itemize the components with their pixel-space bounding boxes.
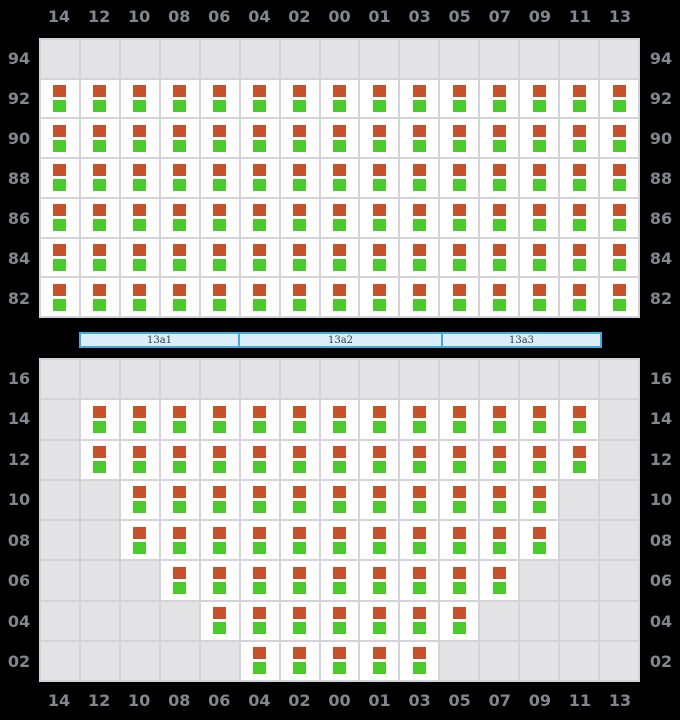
container-marker-top: [493, 125, 506, 137]
container-marker-top: [413, 486, 426, 498]
container-marker-bottom: [493, 299, 506, 311]
row-label-86: 86: [642, 198, 680, 238]
slot-92-03[interactable]: [400, 80, 438, 118]
slot-84-09[interactable]: [520, 239, 558, 277]
container-marker-top: [293, 446, 306, 458]
slot-86-05[interactable]: [440, 199, 478, 237]
slot-14-03[interactable]: [400, 400, 438, 438]
container-marker-top: [173, 446, 186, 458]
slot-82-07[interactable]: [480, 278, 518, 316]
container-marker-top: [173, 204, 186, 216]
container-marker-top: [413, 85, 426, 97]
slot-02-03[interactable]: [400, 642, 438, 680]
slot-92-04[interactable]: [241, 80, 279, 118]
slot-82-09[interactable]: [520, 278, 558, 316]
slot-86-03[interactable]: [400, 199, 438, 237]
slot-82-00[interactable]: [321, 278, 359, 316]
slot-82-06[interactable]: [201, 278, 239, 316]
slot-12-05[interactable]: [440, 441, 478, 479]
slot-94-10: [121, 40, 159, 78]
slot-86-01[interactable]: [360, 199, 398, 237]
slot-16-01: [360, 360, 398, 398]
slot-84-02[interactable]: [281, 239, 319, 277]
slot-88-09[interactable]: [520, 159, 558, 197]
slot-06-05[interactable]: [440, 561, 478, 599]
slot-04-06[interactable]: [201, 602, 239, 640]
container-marker-bottom: [253, 259, 266, 271]
slot-82-05[interactable]: [440, 278, 478, 316]
container-marker-bottom: [133, 542, 146, 554]
slot-88-12[interactable]: [81, 159, 119, 197]
slot-90-10[interactable]: [121, 119, 159, 157]
container-marker-top: [253, 567, 266, 579]
slot-92-00[interactable]: [321, 80, 359, 118]
column-label-11: 11: [560, 7, 600, 26]
row-label-12: 12: [0, 439, 38, 480]
slot-84-01[interactable]: [360, 239, 398, 277]
slot-90-04[interactable]: [241, 119, 279, 157]
slot-92-07[interactable]: [480, 80, 518, 118]
slot-12-09[interactable]: [520, 441, 558, 479]
slot-88-08[interactable]: [161, 159, 199, 197]
column-label-14: 14: [39, 7, 79, 26]
container-marker-bottom: [613, 140, 626, 152]
slot-14-11[interactable]: [560, 400, 598, 438]
slot-04-04[interactable]: [241, 602, 279, 640]
slot-88-11[interactable]: [560, 159, 598, 197]
container-marker-top: [373, 607, 386, 619]
slot-84-06[interactable]: [201, 239, 239, 277]
slot-90-14[interactable]: [41, 119, 79, 157]
slot-86-10[interactable]: [121, 199, 159, 237]
slot-84-14[interactable]: [41, 239, 79, 277]
slot-86-02[interactable]: [281, 199, 319, 237]
slot-84-12[interactable]: [81, 239, 119, 277]
container-marker-bottom: [573, 219, 586, 231]
container-marker-bottom: [613, 219, 626, 231]
slot-82-03[interactable]: [400, 278, 438, 316]
container-marker-top: [253, 527, 266, 539]
container-marker-bottom: [373, 179, 386, 191]
slot-92-02[interactable]: [281, 80, 319, 118]
slot-10-00[interactable]: [321, 481, 359, 519]
slot-84-08[interactable]: [161, 239, 199, 277]
slot-92-11[interactable]: [560, 80, 598, 118]
slot-86-09[interactable]: [520, 199, 558, 237]
hatch-cover-13a3[interactable]: 13a3: [441, 334, 600, 346]
slot-16-14: [41, 360, 79, 398]
slot-82-13[interactable]: [600, 278, 638, 316]
container-marker-top: [133, 446, 146, 458]
slot-94-04: [241, 40, 279, 78]
slot-14-07[interactable]: [480, 400, 518, 438]
slot-82-12[interactable]: [81, 278, 119, 316]
container-marker-top: [333, 406, 346, 418]
slot-08-10[interactable]: [121, 521, 159, 559]
slot-86-14[interactable]: [41, 199, 79, 237]
slot-02-00[interactable]: [321, 642, 359, 680]
row-label-14: 14: [642, 399, 680, 440]
container-marker-top: [573, 125, 586, 137]
container-marker-top: [413, 567, 426, 579]
row-label-94: 94: [0, 38, 38, 78]
slot-08-05[interactable]: [440, 521, 478, 559]
container-marker-top: [613, 204, 626, 216]
slot-08-02[interactable]: [281, 521, 319, 559]
slot-12-06[interactable]: [201, 441, 239, 479]
container-marker-top: [413, 125, 426, 137]
slot-16-05: [440, 360, 478, 398]
slot-06-02[interactable]: [281, 561, 319, 599]
slot-90-02[interactable]: [281, 119, 319, 157]
container-marker-bottom: [253, 582, 266, 594]
slot-06-06[interactable]: [201, 561, 239, 599]
slot-88-05[interactable]: [440, 159, 478, 197]
hold-bay-grid: [39, 358, 640, 682]
slot-10-07[interactable]: [480, 481, 518, 519]
container-marker-bottom: [453, 140, 466, 152]
slot-12-00[interactable]: [321, 441, 359, 479]
container-marker-top: [133, 125, 146, 137]
slot-90-03[interactable]: [400, 119, 438, 157]
slot-10-02[interactable]: [281, 481, 319, 519]
slot-86-13[interactable]: [600, 199, 638, 237]
container-marker-bottom: [573, 299, 586, 311]
container-marker-top: [213, 204, 226, 216]
container-marker-top: [573, 446, 586, 458]
slot-02-01[interactable]: [360, 642, 398, 680]
slot-04-03[interactable]: [400, 602, 438, 640]
slot-90-00[interactable]: [321, 119, 359, 157]
slot-90-12[interactable]: [81, 119, 119, 157]
container-marker-top: [173, 164, 186, 176]
column-label-05: 05: [440, 691, 480, 710]
slot-10-09[interactable]: [520, 481, 558, 519]
slot-82-11[interactable]: [560, 278, 598, 316]
slot-88-07[interactable]: [480, 159, 518, 197]
slot-04-11: [560, 602, 598, 640]
slot-94-00: [321, 40, 359, 78]
column-label-04: 04: [239, 691, 279, 710]
container-marker-top: [293, 204, 306, 216]
slot-10-05[interactable]: [440, 481, 478, 519]
slot-04-08: [161, 602, 199, 640]
slot-92-01[interactable]: [360, 80, 398, 118]
container-marker-top: [453, 85, 466, 97]
slot-06-09: [520, 561, 558, 599]
hold-row-labels-right: 1614121008060402: [642, 358, 680, 682]
slot-10-03[interactable]: [400, 481, 438, 519]
slot-88-04[interactable]: [241, 159, 279, 197]
slot-16-10: [121, 360, 159, 398]
slot-08-03[interactable]: [400, 521, 438, 559]
container-marker-top: [453, 527, 466, 539]
slot-14-08[interactable]: [161, 400, 199, 438]
slot-92-13[interactable]: [600, 80, 638, 118]
slot-88-13[interactable]: [600, 159, 638, 197]
slot-82-01[interactable]: [360, 278, 398, 316]
container-marker-top: [493, 527, 506, 539]
container-marker-top: [493, 406, 506, 418]
slot-86-11[interactable]: [560, 199, 598, 237]
slot-08-09[interactable]: [520, 521, 558, 559]
container-marker-bottom: [53, 299, 66, 311]
slot-92-10[interactable]: [121, 80, 159, 118]
slot-90-13[interactable]: [600, 119, 638, 157]
slot-06-00[interactable]: [321, 561, 359, 599]
slot-92-06[interactable]: [201, 80, 239, 118]
slot-06-08[interactable]: [161, 561, 199, 599]
hatch-cover-13a1[interactable]: 13a1: [81, 334, 238, 346]
container-marker-top: [453, 567, 466, 579]
container-marker-bottom: [133, 501, 146, 513]
container-marker-bottom: [253, 100, 266, 112]
container-marker-bottom: [293, 622, 306, 634]
slot-16-09: [520, 360, 558, 398]
container-marker-bottom: [373, 259, 386, 271]
slot-86-06[interactable]: [201, 199, 239, 237]
slot-06-03[interactable]: [400, 561, 438, 599]
container-marker-bottom: [613, 259, 626, 271]
container-marker-top: [293, 607, 306, 619]
container-marker-bottom: [133, 140, 146, 152]
slot-08-04[interactable]: [241, 521, 279, 559]
container-marker-top: [533, 85, 546, 97]
slot-06-04[interactable]: [241, 561, 279, 599]
container-marker-bottom: [493, 140, 506, 152]
container-marker-top: [453, 244, 466, 256]
slot-04-05[interactable]: [440, 602, 478, 640]
slot-84-05[interactable]: [440, 239, 478, 277]
container-marker-top: [53, 164, 66, 176]
container-marker-top: [333, 284, 346, 296]
slot-10-10[interactable]: [121, 481, 159, 519]
container-marker-top: [213, 567, 226, 579]
slot-06-07[interactable]: [480, 561, 518, 599]
slot-12-11[interactable]: [560, 441, 598, 479]
slot-12-03[interactable]: [400, 441, 438, 479]
container-marker-bottom: [213, 140, 226, 152]
slot-16-12: [81, 360, 119, 398]
slot-08-08[interactable]: [161, 521, 199, 559]
slot-10-11: [560, 481, 598, 519]
slot-90-11[interactable]: [560, 119, 598, 157]
container-marker-bottom: [573, 259, 586, 271]
slot-14-10[interactable]: [121, 400, 159, 438]
slot-14-01[interactable]: [360, 400, 398, 438]
container-marker-bottom: [293, 662, 306, 674]
container-marker-bottom: [493, 259, 506, 271]
slot-84-11[interactable]: [560, 239, 598, 277]
container-marker-bottom: [333, 100, 346, 112]
slot-86-07[interactable]: [480, 199, 518, 237]
slot-90-01[interactable]: [360, 119, 398, 157]
slot-92-08[interactable]: [161, 80, 199, 118]
slot-10-08[interactable]: [161, 481, 199, 519]
row-label-94: 94: [642, 38, 680, 78]
container-marker-top: [413, 204, 426, 216]
container-marker-top: [493, 486, 506, 498]
slot-88-06[interactable]: [201, 159, 239, 197]
container-marker-top: [373, 164, 386, 176]
slot-06-01[interactable]: [360, 561, 398, 599]
slot-90-07[interactable]: [480, 119, 518, 157]
container-marker-bottom: [53, 219, 66, 231]
slot-12-01[interactable]: [360, 441, 398, 479]
container-marker-top: [293, 85, 306, 97]
slot-02-13: [600, 642, 638, 680]
slot-08-07[interactable]: [480, 521, 518, 559]
slot-94-12: [81, 40, 119, 78]
slot-88-00[interactable]: [321, 159, 359, 197]
container-marker-top: [613, 284, 626, 296]
slot-84-10[interactable]: [121, 239, 159, 277]
slot-02-02[interactable]: [281, 642, 319, 680]
container-marker-bottom: [293, 259, 306, 271]
slot-04-00[interactable]: [321, 602, 359, 640]
slot-12-07[interactable]: [480, 441, 518, 479]
slot-08-00[interactable]: [321, 521, 359, 559]
container-marker-top: [213, 446, 226, 458]
slot-82-02[interactable]: [281, 278, 319, 316]
container-marker-bottom: [613, 179, 626, 191]
container-marker-top: [133, 406, 146, 418]
container-marker-bottom: [173, 501, 186, 513]
column-label-08: 08: [159, 691, 199, 710]
container-marker-bottom: [333, 259, 346, 271]
container-marker-bottom: [293, 179, 306, 191]
slot-90-05[interactable]: [440, 119, 478, 157]
container-marker-top: [133, 85, 146, 97]
slot-10-04[interactable]: [241, 481, 279, 519]
slot-84-04[interactable]: [241, 239, 279, 277]
hatch-cover-13a2[interactable]: 13a2: [238, 334, 441, 346]
slot-14-00[interactable]: [321, 400, 359, 438]
container-marker-bottom: [293, 461, 306, 473]
slot-14-06[interactable]: [201, 400, 239, 438]
slot-04-01[interactable]: [360, 602, 398, 640]
container-marker-bottom: [213, 542, 226, 554]
slot-88-10[interactable]: [121, 159, 159, 197]
slot-14-12[interactable]: [81, 400, 119, 438]
column-label-01: 01: [360, 691, 400, 710]
column-label-13: 13: [600, 691, 640, 710]
slot-86-12[interactable]: [81, 199, 119, 237]
slot-10-01[interactable]: [360, 481, 398, 519]
slot-86-04[interactable]: [241, 199, 279, 237]
slot-90-06[interactable]: [201, 119, 239, 157]
container-marker-bottom: [373, 461, 386, 473]
slot-08-01[interactable]: [360, 521, 398, 559]
slot-02-12: [81, 642, 119, 680]
slot-92-12[interactable]: [81, 80, 119, 118]
slot-12-12[interactable]: [81, 441, 119, 479]
slot-14-04[interactable]: [241, 400, 279, 438]
container-marker-top: [373, 125, 386, 137]
container-marker-bottom: [173, 582, 186, 594]
container-marker-bottom: [533, 542, 546, 554]
slot-92-09[interactable]: [520, 80, 558, 118]
slot-12-13: [600, 441, 638, 479]
slot-02-04[interactable]: [241, 642, 279, 680]
container-marker-bottom: [253, 219, 266, 231]
slot-92-14[interactable]: [41, 80, 79, 118]
slot-90-08[interactable]: [161, 119, 199, 157]
slot-12-08[interactable]: [161, 441, 199, 479]
slot-90-09[interactable]: [520, 119, 558, 157]
container-marker-top: [453, 204, 466, 216]
container-marker-top: [413, 607, 426, 619]
slot-88-03[interactable]: [400, 159, 438, 197]
slot-16-04: [241, 360, 279, 398]
slot-88-02[interactable]: [281, 159, 319, 197]
slot-04-02[interactable]: [281, 602, 319, 640]
slot-14-05[interactable]: [440, 400, 478, 438]
container-marker-bottom: [173, 421, 186, 433]
slot-86-00[interactable]: [321, 199, 359, 237]
slot-86-08[interactable]: [161, 199, 199, 237]
container-marker-bottom: [93, 421, 106, 433]
slot-82-10[interactable]: [121, 278, 159, 316]
slot-16-06: [201, 360, 239, 398]
container-marker-top: [253, 607, 266, 619]
slot-84-03[interactable]: [400, 239, 438, 277]
container-marker-bottom: [173, 100, 186, 112]
container-marker-bottom: [413, 622, 426, 634]
container-marker-bottom: [453, 219, 466, 231]
slot-94-02: [281, 40, 319, 78]
slot-84-13[interactable]: [600, 239, 638, 277]
slot-14-09[interactable]: [520, 400, 558, 438]
container-marker-bottom: [613, 299, 626, 311]
slot-84-07[interactable]: [480, 239, 518, 277]
container-marker-top: [213, 527, 226, 539]
slot-08-14: [41, 521, 79, 559]
container-marker-bottom: [573, 140, 586, 152]
slot-94-11: [560, 40, 598, 78]
slot-10-06[interactable]: [201, 481, 239, 519]
slot-08-06[interactable]: [201, 521, 239, 559]
container-marker-bottom: [133, 299, 146, 311]
row-label-92: 92: [0, 78, 38, 118]
container-marker-top: [533, 527, 546, 539]
slot-12-02[interactable]: [281, 441, 319, 479]
slot-02-08: [161, 642, 199, 680]
container-marker-bottom: [453, 299, 466, 311]
slot-82-04[interactable]: [241, 278, 279, 316]
slot-82-08[interactable]: [161, 278, 199, 316]
container-marker-bottom: [53, 100, 66, 112]
container-marker-bottom: [533, 179, 546, 191]
container-marker-bottom: [333, 501, 346, 513]
container-marker-top: [93, 164, 106, 176]
slot-82-14[interactable]: [41, 278, 79, 316]
container-marker-top: [413, 164, 426, 176]
slot-88-14[interactable]: [41, 159, 79, 197]
slot-14-02[interactable]: [281, 400, 319, 438]
row-label-92: 92: [642, 78, 680, 118]
slot-12-04[interactable]: [241, 441, 279, 479]
slot-84-00[interactable]: [321, 239, 359, 277]
container-marker-bottom: [133, 259, 146, 271]
slot-12-10[interactable]: [121, 441, 159, 479]
container-marker-top: [253, 486, 266, 498]
container-marker-bottom: [253, 179, 266, 191]
slot-92-05[interactable]: [440, 80, 478, 118]
slot-88-01[interactable]: [360, 159, 398, 197]
slot-04-10: [121, 602, 159, 640]
container-marker-bottom: [533, 299, 546, 311]
